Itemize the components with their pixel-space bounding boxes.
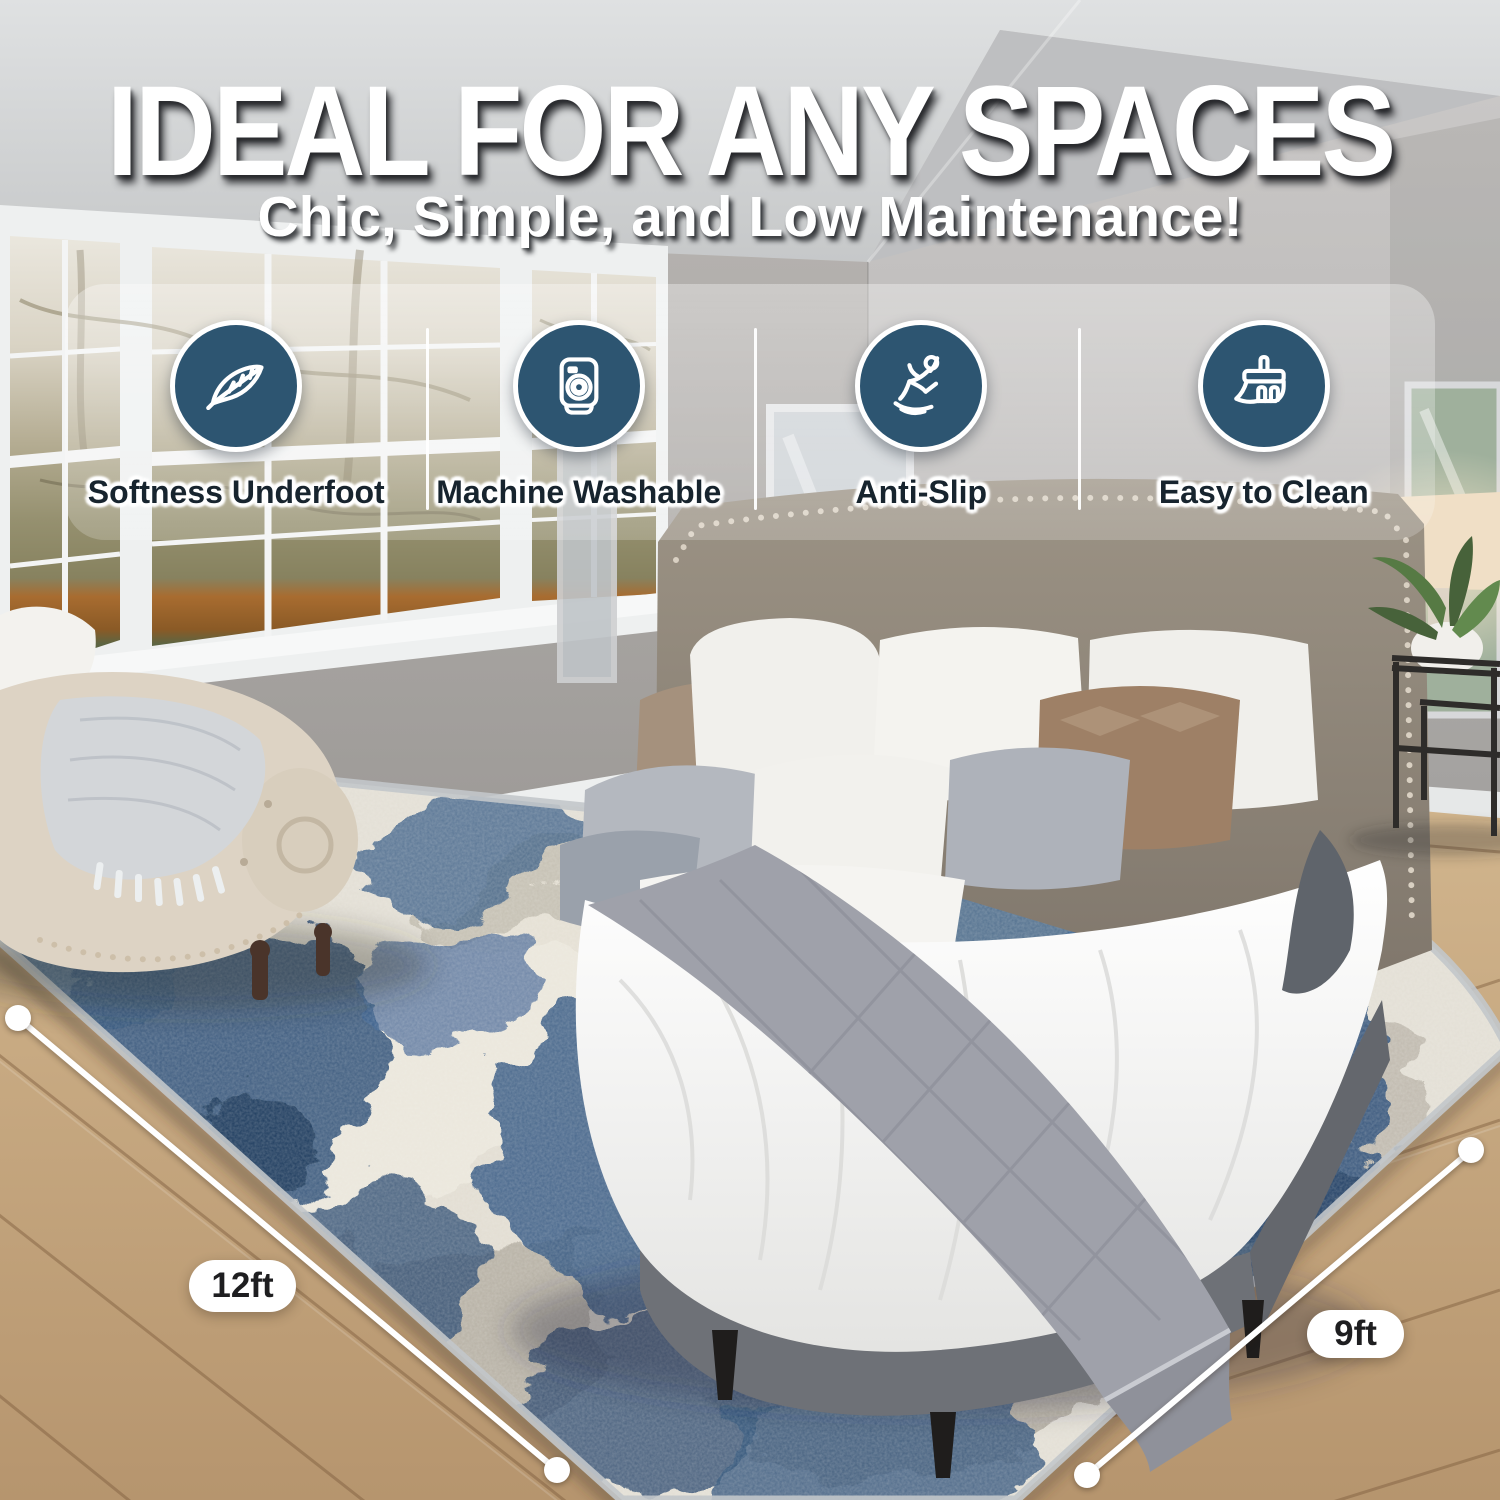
subheadline: Chic, Simple, and Low Maintenance! [0,186,1500,249]
feature-divider [1078,328,1081,510]
feature-divider [754,328,757,510]
rug-lifestyle-ad: IDEAL FOR ANY SPACES Chic, Simple, and L… [0,0,1500,1500]
feature-label: Machine Washable [436,474,721,511]
feature-softness-underfoot: Softness Underfoot [65,284,408,540]
cleaning-brush-icon [1198,320,1330,452]
feature-label: Easy to Clean [1159,474,1369,511]
length-label-pill: 12ft [189,1260,296,1312]
measure-endpoint-dot [1458,1137,1484,1163]
feature-easy-to-clean: Easy to Clean [1093,284,1436,540]
feature-machine-washable: Machine Washable [408,284,751,540]
feature-bar: Softness Underfoot Machine Washable [65,284,1435,540]
headline: IDEAL FOR ANY SPACES [0,68,1500,196]
feature-label: Anti-Slip [855,474,987,511]
washing-machine-icon [513,320,645,452]
feather-icon [170,320,302,452]
feature-label: Softness Underfoot [88,474,385,511]
measure-endpoint-dot [5,1005,31,1031]
measure-endpoint-dot [544,1457,570,1483]
slipping-person-icon [855,320,987,452]
width-label-pill: 9ft [1307,1310,1404,1358]
feature-divider [426,328,429,510]
feature-anti-slip: Anti-Slip [750,284,1093,540]
measure-endpoint-dot [1074,1462,1100,1488]
